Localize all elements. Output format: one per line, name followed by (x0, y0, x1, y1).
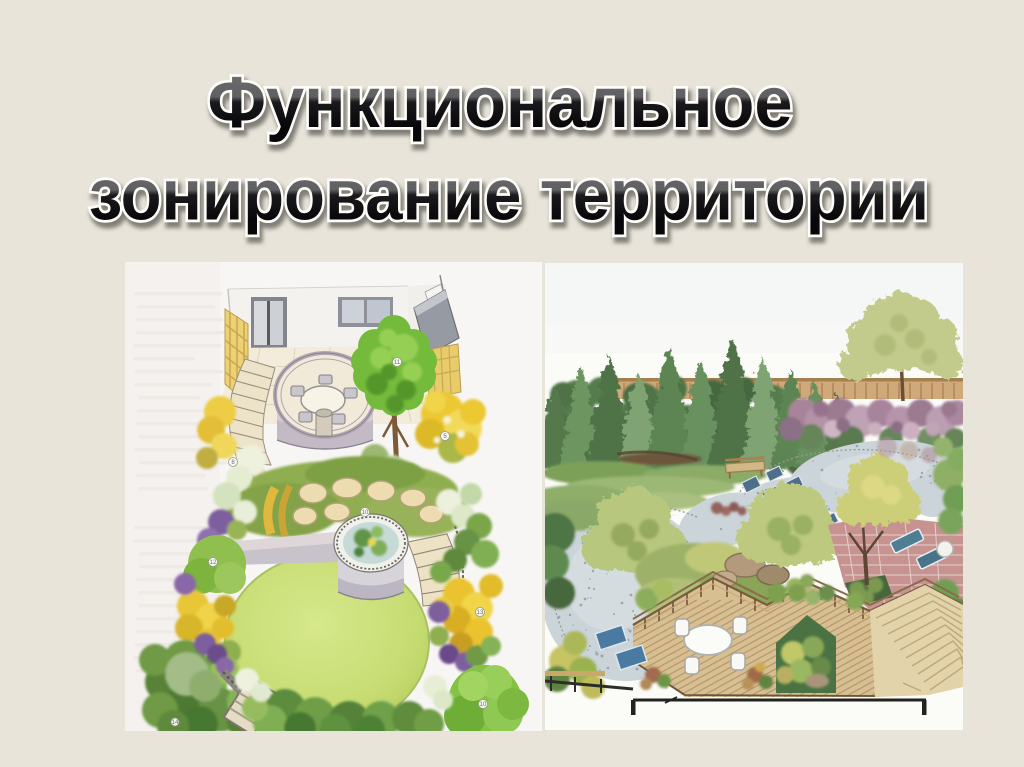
svg-text:11: 11 (394, 360, 401, 366)
svg-text:13: 13 (477, 610, 484, 616)
svg-text:14: 14 (172, 720, 179, 726)
svg-text:10: 10 (480, 702, 487, 708)
svg-text:10: 10 (362, 510, 369, 516)
svg-text:зонирование территории: зонирование территории (89, 155, 929, 236)
svg-text:Функциональное: Функциональное (208, 62, 793, 143)
svg-text:12: 12 (210, 560, 217, 566)
